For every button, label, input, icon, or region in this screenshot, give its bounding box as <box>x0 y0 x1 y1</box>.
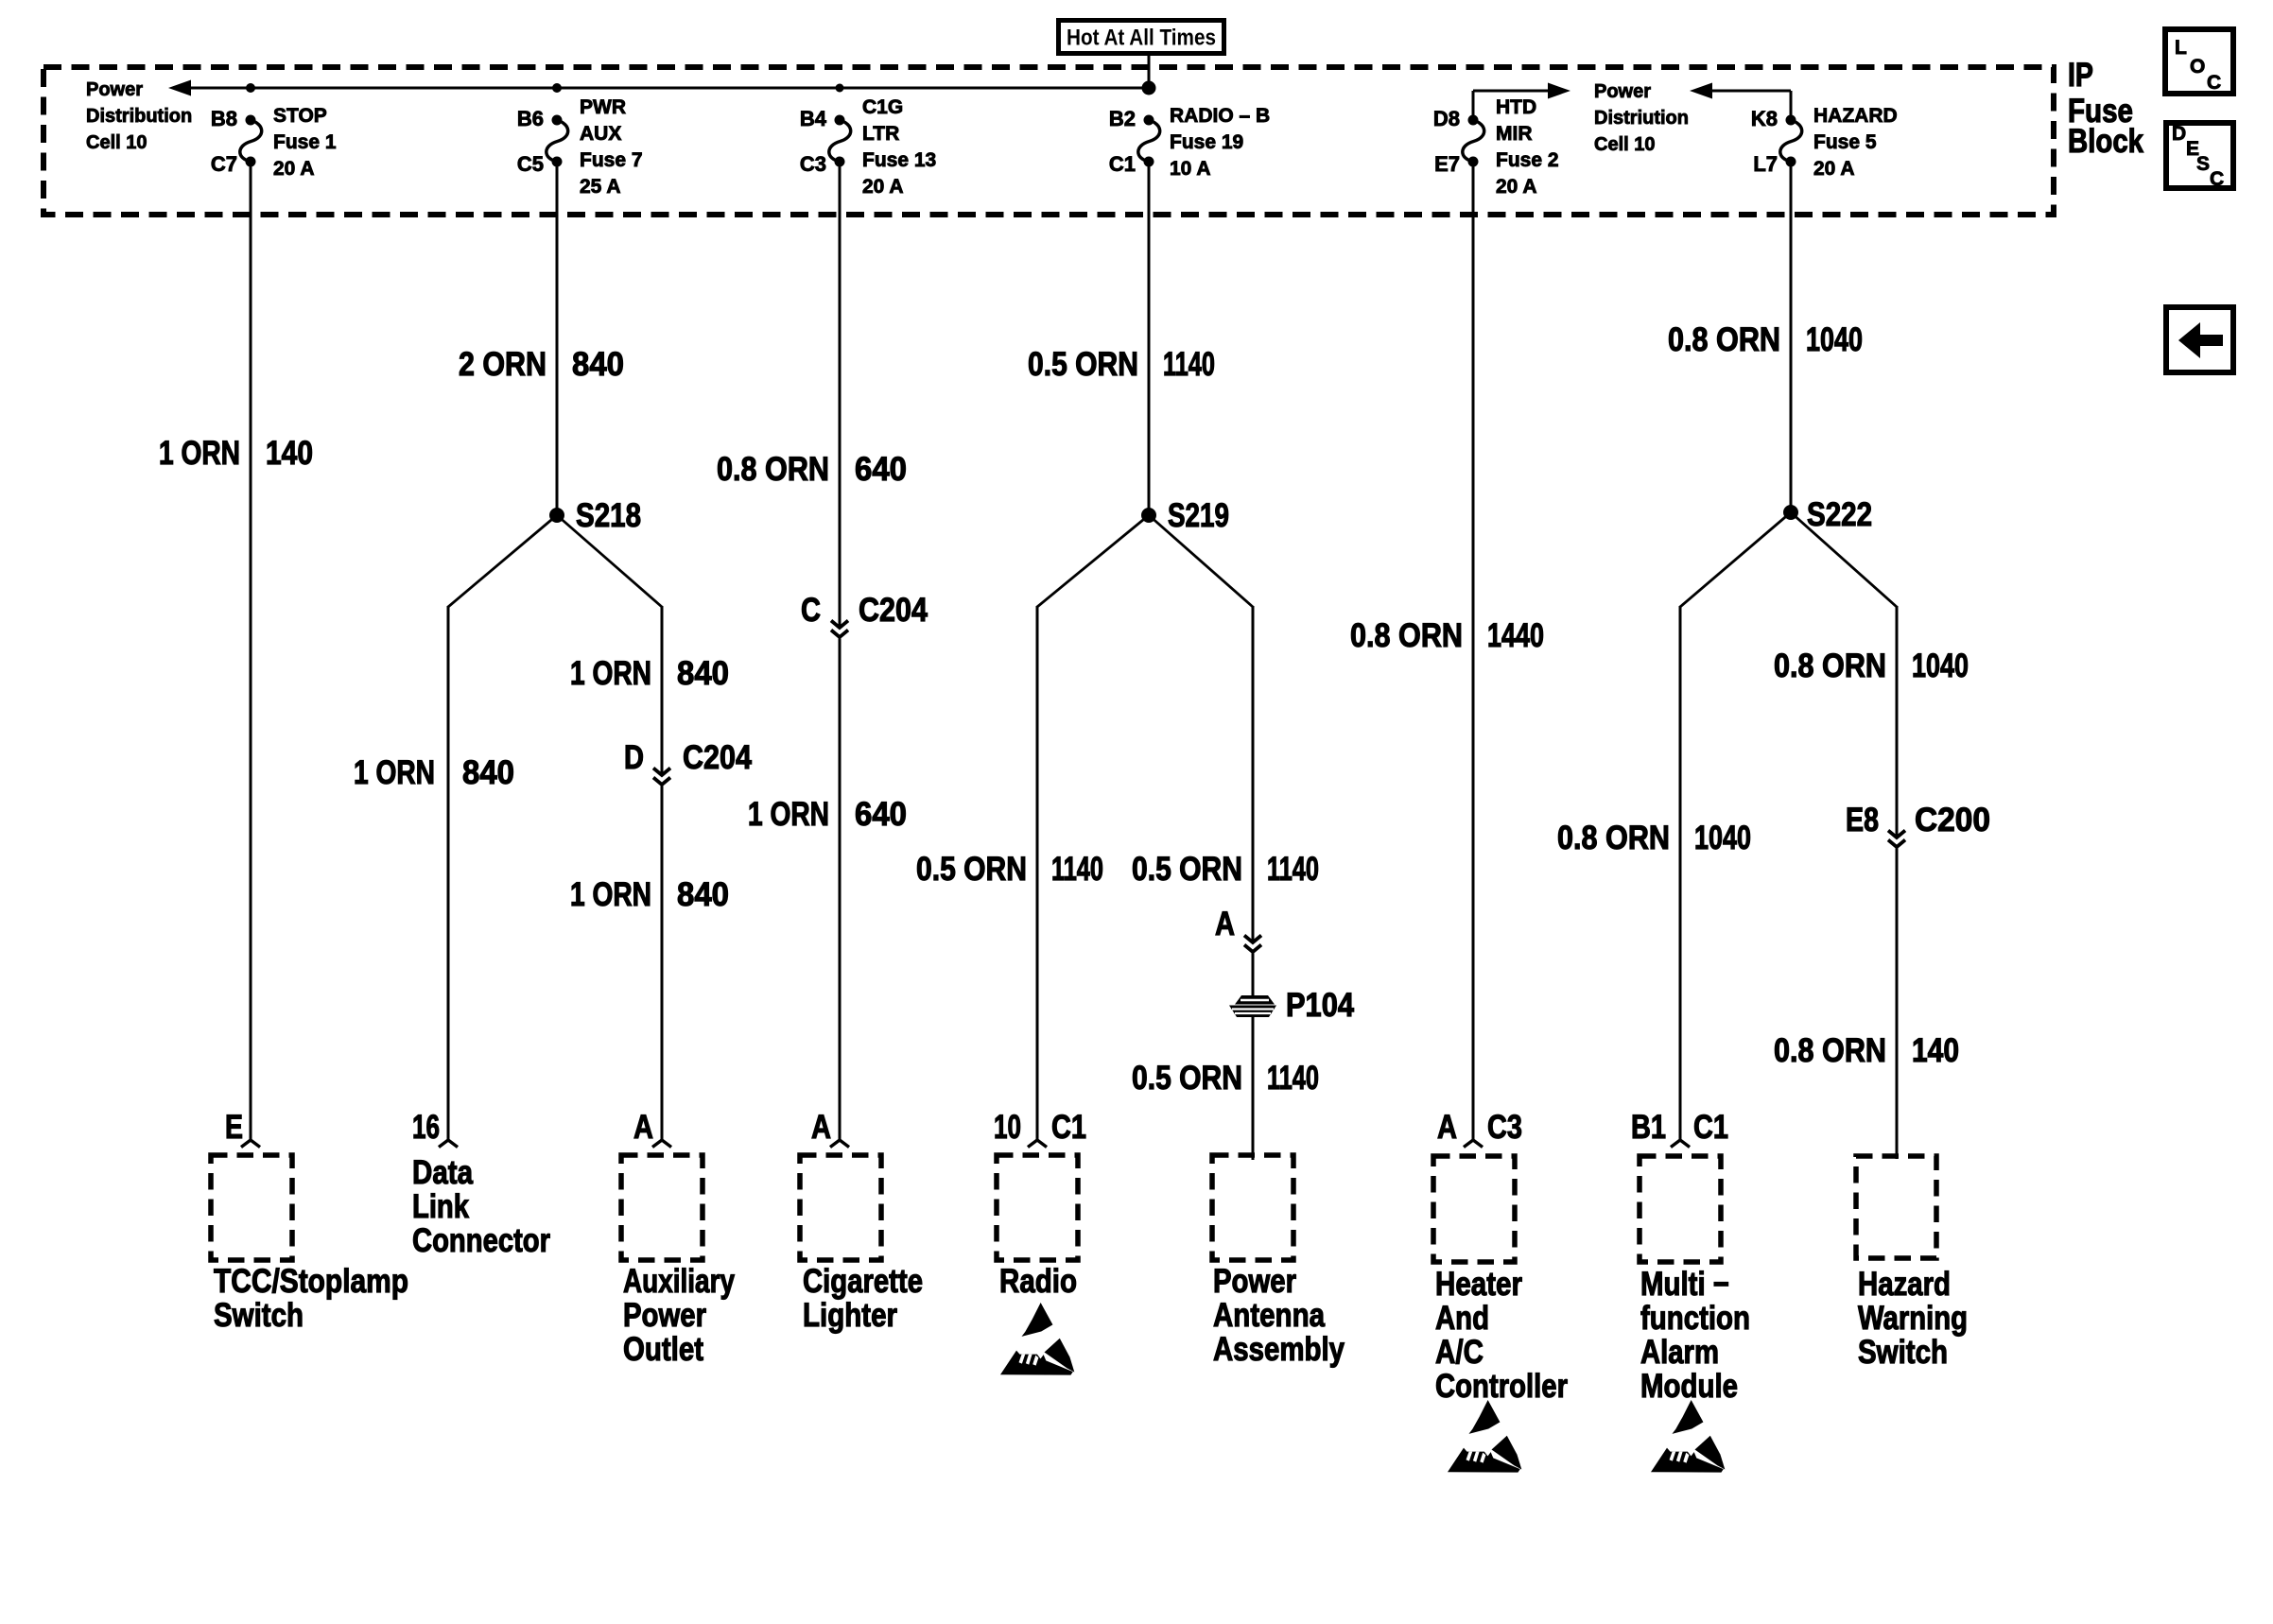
svg-text:1 ORN: 1 ORN <box>159 435 240 472</box>
svg-text:140: 140 <box>1912 1032 1959 1069</box>
svg-text:A: A <box>633 1109 653 1146</box>
svg-text:25 A: 25 A <box>580 176 621 198</box>
svg-text:20 A: 20 A <box>273 158 315 180</box>
svg-text:0.5 ORN: 0.5 ORN <box>1132 1060 1242 1097</box>
svg-text:Link: Link <box>412 1188 469 1225</box>
svg-text:1040: 1040 <box>1912 648 1969 684</box>
svg-text:0.5 ORN: 0.5 ORN <box>1028 346 1138 383</box>
svg-text:L7: L7 <box>1753 152 1778 176</box>
svg-text:20 A: 20 A <box>862 176 904 198</box>
svg-text:S219: S219 <box>1168 497 1229 534</box>
svg-text:Antenna: Antenna <box>1213 1297 1325 1334</box>
svg-text:Cigarette: Cigarette <box>803 1263 923 1300</box>
svg-text:Auxiliary: Auxiliary <box>623 1263 735 1300</box>
svg-text:LTR: LTR <box>862 123 899 145</box>
svg-text:840: 840 <box>677 655 729 692</box>
svg-text:2 ORN: 2 ORN <box>459 346 547 383</box>
svg-text:Fuse 2: Fuse 2 <box>1496 149 1559 171</box>
svg-text:Assembly: Assembly <box>1213 1331 1345 1368</box>
svg-text:Power: Power <box>1594 81 1651 102</box>
svg-text:1140: 1140 <box>1267 1060 1319 1097</box>
svg-text:A: A <box>1215 906 1235 942</box>
svg-text:C1: C1 <box>1693 1109 1728 1146</box>
svg-text:C: C <box>2207 72 2221 94</box>
svg-text:Switch: Switch <box>214 1297 304 1334</box>
svg-text:1140: 1140 <box>1051 851 1103 888</box>
svg-text:Distribution: Distribution <box>86 106 192 127</box>
svg-text:B4: B4 <box>800 107 827 130</box>
svg-text:Hazard: Hazard <box>1858 1266 1951 1303</box>
svg-text:RADIO – B: RADIO – B <box>1170 105 1270 127</box>
svg-text:Fuse 13: Fuse 13 <box>862 149 936 171</box>
svg-text:Fuse 19: Fuse 19 <box>1170 131 1243 153</box>
svg-text:Lighter: Lighter <box>803 1297 897 1334</box>
svg-text:Warning: Warning <box>1858 1300 1968 1337</box>
svg-text:C3: C3 <box>800 152 826 176</box>
svg-text:Distriution: Distriution <box>1594 108 1689 129</box>
svg-text:Power: Power <box>86 79 143 100</box>
svg-text:Power: Power <box>623 1297 706 1334</box>
svg-text:E7: E7 <box>1434 152 1460 176</box>
svg-text:1 ORN: 1 ORN <box>748 796 829 833</box>
svg-text:MIR: MIR <box>1496 123 1533 145</box>
svg-text:Switch: Switch <box>1858 1334 1948 1371</box>
svg-text:10 A: 10 A <box>1170 158 1211 180</box>
svg-text:S222: S222 <box>1807 496 1872 533</box>
svg-text:A: A <box>811 1109 831 1146</box>
svg-text:C1G: C1G <box>862 96 903 118</box>
svg-text:Block: Block <box>2068 123 2143 160</box>
svg-text:E: E <box>225 1109 243 1146</box>
svg-text:20 A: 20 A <box>1813 158 1855 180</box>
svg-text:840: 840 <box>677 876 729 913</box>
svg-text:0.8 ORN: 0.8 ORN <box>1350 617 1463 654</box>
svg-text:B1: B1 <box>1631 1109 1666 1146</box>
svg-text:Fuse 7: Fuse 7 <box>580 149 643 171</box>
svg-text:C5: C5 <box>517 152 544 176</box>
svg-text:Hot At All Times: Hot At All Times <box>1067 26 1216 51</box>
svg-text:1440: 1440 <box>1487 617 1544 654</box>
svg-text:1040: 1040 <box>1806 321 1863 358</box>
svg-text:function: function <box>1640 1300 1750 1337</box>
svg-text:E8: E8 <box>1846 802 1879 838</box>
svg-text:Radio: Radio <box>999 1263 1077 1300</box>
svg-text:1140: 1140 <box>1267 851 1319 888</box>
svg-text:1 ORN: 1 ORN <box>354 754 435 791</box>
svg-text:C200: C200 <box>1915 802 1990 838</box>
svg-text:0.8 ORN: 0.8 ORN <box>1557 820 1670 856</box>
svg-text:STOP: STOP <box>273 105 327 127</box>
svg-text:Heater: Heater <box>1435 1266 1522 1303</box>
svg-text:S218: S218 <box>576 497 641 534</box>
svg-text:K8: K8 <box>1751 107 1778 130</box>
svg-text:C7: C7 <box>211 152 237 176</box>
svg-text:Fuse 5: Fuse 5 <box>1813 131 1877 153</box>
svg-text:1140: 1140 <box>1163 346 1215 383</box>
svg-text:640: 640 <box>855 796 907 833</box>
svg-text:TCC/Stoplamp: TCC/Stoplamp <box>214 1263 408 1300</box>
svg-text:0.5 ORN: 0.5 ORN <box>1132 851 1242 888</box>
svg-text:A: A <box>1437 1109 1457 1146</box>
svg-text:And: And <box>1435 1300 1489 1337</box>
svg-text:B8: B8 <box>211 107 237 130</box>
svg-text:IP: IP <box>2068 57 2093 94</box>
svg-text:Module: Module <box>1640 1368 1738 1405</box>
svg-text:Alarm: Alarm <box>1640 1334 1719 1371</box>
svg-text:D8: D8 <box>1433 107 1460 130</box>
svg-text:Outlet: Outlet <box>623 1331 703 1368</box>
svg-text:HAZARD: HAZARD <box>1813 105 1898 127</box>
svg-text:Fuse 1: Fuse 1 <box>273 131 337 153</box>
svg-text:C: C <box>801 592 821 629</box>
svg-text:S: S <box>2196 153 2210 175</box>
svg-text:A/C: A/C <box>1435 1334 1484 1371</box>
svg-text:Connector: Connector <box>412 1222 550 1259</box>
svg-text:D: D <box>624 739 644 776</box>
svg-text:1040: 1040 <box>1694 820 1751 856</box>
svg-text:16: 16 <box>412 1109 440 1146</box>
svg-text:L: L <box>2175 37 2187 59</box>
svg-text:840: 840 <box>462 754 514 791</box>
svg-text:Controller: Controller <box>1435 1368 1568 1405</box>
svg-text:0.8 ORN: 0.8 ORN <box>1668 321 1780 358</box>
svg-text:Power: Power <box>1213 1263 1296 1300</box>
svg-text:1 ORN: 1 ORN <box>570 655 651 692</box>
svg-text:C3: C3 <box>1487 1109 1522 1146</box>
svg-text:640: 640 <box>855 451 907 488</box>
svg-text:0.8 ORN: 0.8 ORN <box>1774 1032 1886 1069</box>
svg-text:Cell 10: Cell 10 <box>1594 134 1655 155</box>
svg-text:0.5 ORN: 0.5 ORN <box>916 851 1027 888</box>
svg-text:C204: C204 <box>683 739 752 776</box>
svg-text:140: 140 <box>266 435 313 472</box>
svg-text:10: 10 <box>994 1109 1021 1146</box>
svg-text:B6: B6 <box>517 107 544 130</box>
svg-text:C: C <box>2210 168 2224 190</box>
svg-text:AUX: AUX <box>580 123 621 145</box>
svg-text:0.8 ORN: 0.8 ORN <box>717 451 829 488</box>
svg-text:C1: C1 <box>1109 152 1136 176</box>
svg-text:C1: C1 <box>1051 1109 1086 1146</box>
svg-text:1 ORN: 1 ORN <box>570 876 651 913</box>
svg-text:20 A: 20 A <box>1496 176 1537 198</box>
svg-text:0.8 ORN: 0.8 ORN <box>1774 648 1886 684</box>
svg-text:C204: C204 <box>859 592 928 629</box>
svg-text:Cell 10: Cell 10 <box>86 132 147 153</box>
svg-text:O: O <box>2190 56 2205 78</box>
svg-text:P104: P104 <box>1286 987 1354 1024</box>
svg-text:D: D <box>2172 123 2186 145</box>
svg-text:PWR: PWR <box>580 96 626 118</box>
svg-text:Multi −: Multi − <box>1640 1266 1729 1303</box>
svg-text:B2: B2 <box>1109 107 1136 130</box>
svg-text:Data: Data <box>412 1154 473 1191</box>
svg-text:840: 840 <box>572 346 624 383</box>
svg-text:HTD: HTD <box>1496 96 1536 118</box>
